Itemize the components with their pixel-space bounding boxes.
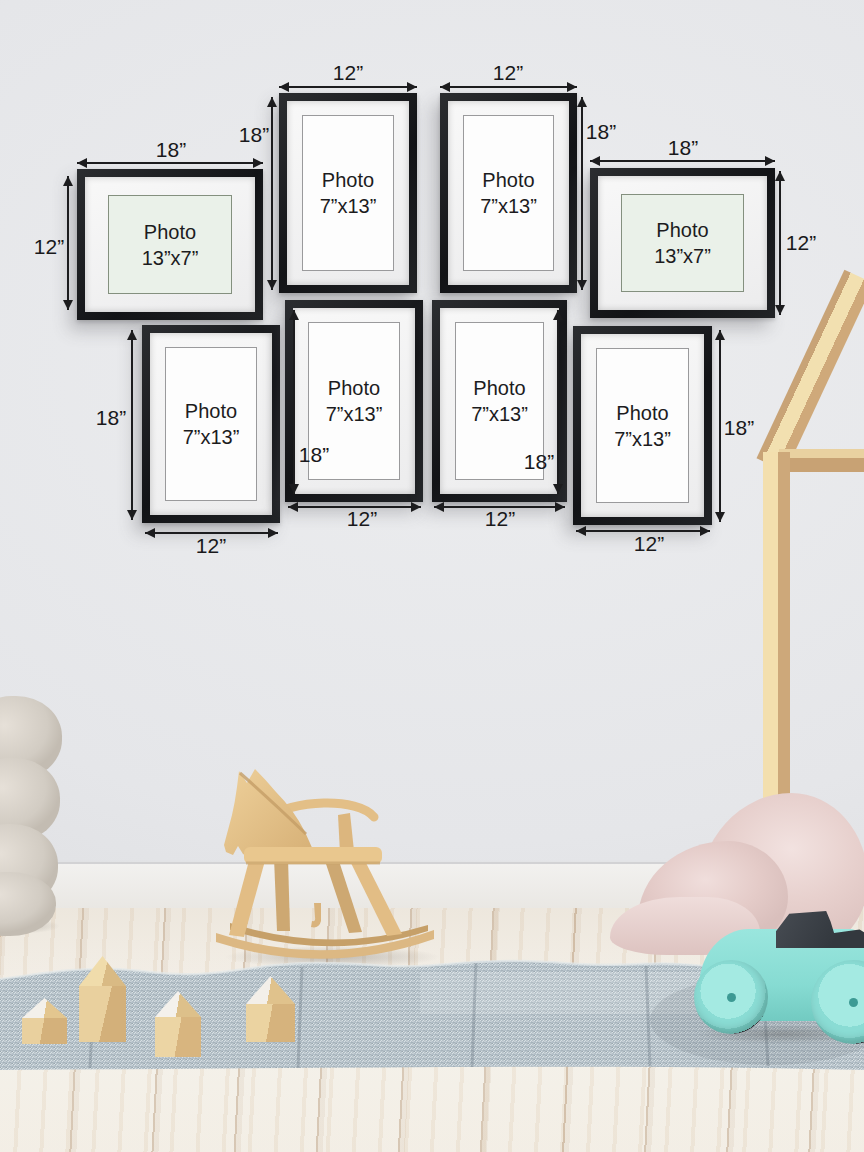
photo-placeholder: Photo 7”x13” — [302, 115, 394, 271]
dimension-label: 12” — [333, 61, 363, 85]
dimension-label: 12” — [196, 534, 226, 558]
dimension-arrow — [131, 330, 133, 520]
photo-frame: Photo 7”x13” — [573, 326, 712, 525]
wooden-house-block — [246, 976, 295, 1042]
photo-frame: Photo 7”x13” — [142, 325, 280, 523]
photo-label: Photo — [482, 167, 534, 193]
dimension-arrow — [590, 160, 775, 162]
photo-label: Photo — [656, 217, 708, 243]
dimension-label: 12” — [634, 532, 664, 556]
house-frame-post — [763, 452, 790, 842]
photo-frame: Photo 7”x13” — [440, 93, 577, 293]
dimension-arrow — [719, 330, 721, 522]
dimension-label: 12” — [485, 507, 515, 531]
dimension-arrow — [581, 97, 583, 290]
dimension-label: 18” — [586, 120, 616, 144]
dimension-label: 18” — [724, 416, 754, 440]
dimension-arrow — [77, 162, 263, 164]
photo-frame: Photo 7”x13” — [285, 300, 423, 502]
dimension-arrow — [271, 97, 273, 290]
horse-seat — [244, 847, 382, 864]
house-frame-rail — [779, 449, 864, 472]
horse-rear-left-leg — [274, 858, 290, 931]
nursery-mockup-scene: Photo 13”x7” Photo 7”x13” Photo 7”x13” P… — [0, 0, 864, 1152]
photo-placeholder: Photo 7”x13” — [596, 348, 689, 503]
rocking-horse — [210, 755, 460, 970]
photo-label: Photo — [185, 398, 237, 424]
dimension-label: 18” — [96, 406, 126, 430]
photo-size-label: 13”x7” — [142, 245, 199, 271]
dimension-label: 18” — [239, 123, 269, 147]
wooden-house-block — [79, 956, 126, 1042]
photo-size-label: 13”x7” — [654, 243, 711, 269]
frame-mat: Photo 13”x7” — [85, 177, 255, 312]
dimension-label: 18” — [524, 450, 554, 474]
photo-label: Photo — [473, 375, 525, 401]
photo-placeholder: Photo 7”x13” — [165, 347, 257, 501]
dimension-arrow — [557, 310, 559, 494]
dimension-arrow — [279, 86, 417, 88]
wooden-house-block — [155, 991, 201, 1057]
photo-frame: Photo 13”x7” — [590, 168, 775, 318]
photo-size-label: 7”x13” — [183, 424, 240, 450]
dimension-label: 12” — [34, 235, 64, 259]
dimension-label: 12” — [347, 507, 377, 531]
horse-front-left-leg — [229, 857, 266, 937]
dimension-label: 18” — [299, 443, 329, 467]
dimension-label: 12” — [493, 61, 523, 85]
photo-size-label: 7”x13” — [480, 193, 537, 219]
photo-placeholder: Photo 13”x7” — [621, 194, 744, 292]
photo-label: Photo — [144, 219, 196, 245]
photo-size-label: 7”x13” — [326, 401, 383, 427]
wooden-house-block — [22, 998, 67, 1044]
dimension-arrow — [293, 310, 295, 494]
photo-placeholder: Photo 13”x7” — [108, 195, 232, 294]
dimension-label: 18” — [668, 136, 698, 160]
toy-car-front-wheel — [694, 960, 768, 1034]
dimension-arrow — [779, 171, 781, 315]
photo-placeholder: Photo 7”x13” — [463, 115, 554, 271]
photo-size-label: 7”x13” — [614, 426, 671, 452]
dimension-label: 18” — [156, 138, 186, 162]
photo-frame: Photo 13”x7” — [77, 169, 263, 320]
dimension-arrow — [440, 86, 577, 88]
photo-label: Photo — [322, 167, 374, 193]
dimension-arrow — [67, 176, 69, 310]
photo-label: Photo — [616, 400, 668, 426]
photo-label: Photo — [328, 375, 380, 401]
photo-size-label: 7”x13” — [471, 401, 528, 427]
dimension-label: 12” — [786, 231, 816, 255]
photo-size-label: 7”x13” — [320, 193, 377, 219]
horse-footrest-peg — [311, 903, 321, 927]
photo-frame: Photo 7”x13” — [279, 93, 417, 293]
quilted-pouf — [0, 696, 62, 936]
